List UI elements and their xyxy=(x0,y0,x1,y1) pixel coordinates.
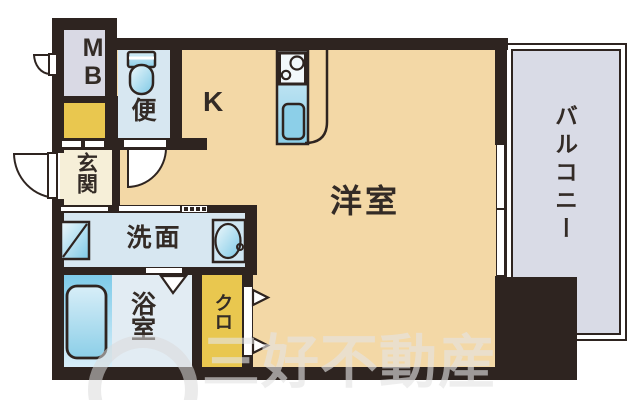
room-label-main-room: 洋室 xyxy=(330,185,400,218)
entrance-door-leaf xyxy=(47,152,58,199)
room-label-bathroom: 浴室 xyxy=(128,291,154,341)
room-label-balcony: バルコニー xyxy=(552,104,575,244)
room-label-kitchen: K xyxy=(203,88,223,117)
shoe-cabinet-fill xyxy=(64,103,108,138)
wall xyxy=(495,43,507,145)
toilet-room-fill xyxy=(118,50,170,140)
room-label-toilet: 便 xyxy=(118,99,170,125)
vent-dashes xyxy=(182,206,207,212)
mb-door-leaf xyxy=(48,53,58,76)
floor-plan: MB 便 K 玄関 洗面 浴室 クロ 洋室 バルコニー 三好不動産 xyxy=(0,0,640,400)
wall xyxy=(245,205,257,268)
balcony-sliding-door-icon xyxy=(496,209,505,276)
structural-pillar xyxy=(495,277,577,372)
wall xyxy=(112,148,120,206)
room-label-genkan: 玄関 xyxy=(75,152,96,194)
wall xyxy=(192,275,202,368)
bathroom-door-leaf xyxy=(145,267,183,274)
genkan-step xyxy=(60,206,109,212)
sliding-door-icon xyxy=(61,140,82,148)
wall xyxy=(52,199,64,380)
sliding-door-icon xyxy=(84,140,105,148)
wall xyxy=(170,50,182,150)
watermark-text: 三好不動産 xyxy=(202,334,497,392)
room-label-washroom: 洗面 xyxy=(64,226,245,252)
washroom-door-opening xyxy=(118,205,181,212)
wall xyxy=(105,38,508,50)
balcony-sliding-door-icon xyxy=(496,144,505,209)
room-label-closet: クロ xyxy=(212,293,231,331)
room-label-mb: MB xyxy=(64,34,105,90)
toilet-door-leaf xyxy=(123,139,167,148)
